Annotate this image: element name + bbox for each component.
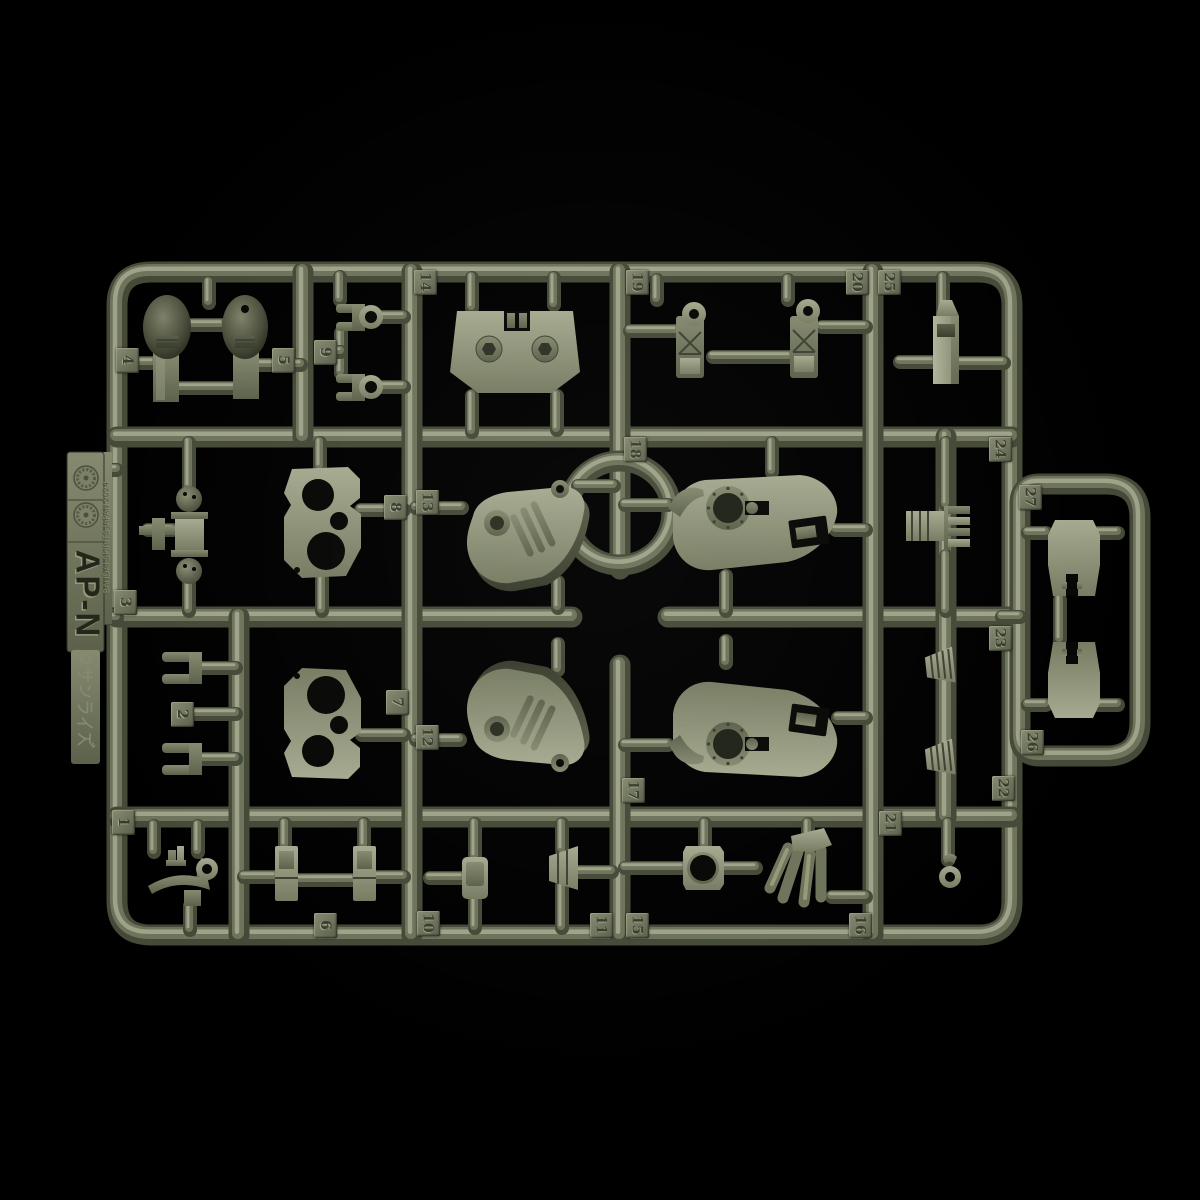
part-11-wedge <box>549 846 578 890</box>
part-15-socket-block <box>683 846 724 890</box>
part-26-armor-flap <box>1048 642 1100 718</box>
mold-date-wheel <box>74 503 98 527</box>
part-13-shield <box>467 480 590 591</box>
part-8-frame-plate <box>284 467 361 578</box>
mold-info-text: BANDAI SPIRITS JAPAN 2024 <box>102 482 111 594</box>
part-14-chest-plate <box>450 311 580 393</box>
part-7-frame-plate <box>284 668 361 779</box>
part-18-armor-panel <box>668 475 837 570</box>
part-12-shield <box>467 661 590 772</box>
mold-date-wheel <box>74 466 98 490</box>
sprue-photo: AP-N AP-N BANDAI SPIRITS JAPAN 2024 BAND… <box>0 0 1200 1200</box>
part-25-box <box>933 300 959 384</box>
sprue-runner-graphic: AP-N AP-N BANDAI SPIRITS JAPAN 2024 BAND… <box>0 0 1200 1200</box>
part-23-vent-cone <box>924 647 956 686</box>
part-3-ball-joint <box>139 486 208 584</box>
part-17-armor-panel <box>668 682 837 777</box>
part-19-joint <box>676 302 706 378</box>
part-16-tripod <box>770 828 832 902</box>
part-10-block <box>462 857 488 899</box>
part-27-armor-flap <box>1048 520 1100 596</box>
part-20-joint <box>790 299 820 378</box>
part-22-vent-cone <box>924 739 956 778</box>
